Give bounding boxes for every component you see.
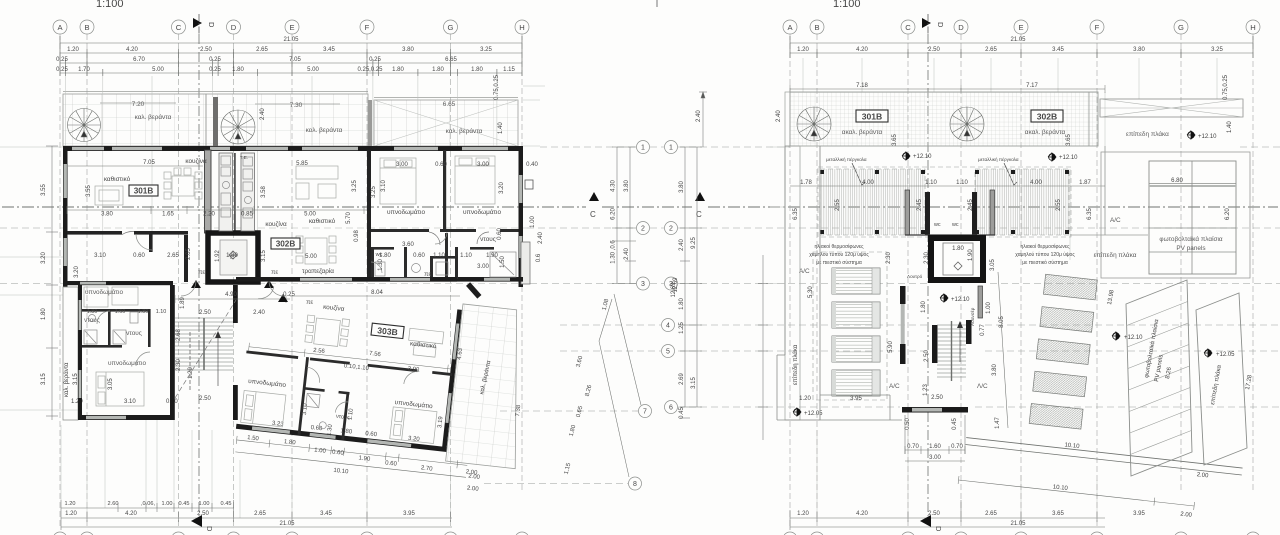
svg-text:3.10: 3.10 — [124, 399, 136, 405]
svg-text:2.50: 2.50 — [924, 350, 930, 362]
svg-text:1: 1 — [669, 145, 673, 152]
svg-text:6.65: 6.65 — [443, 101, 456, 108]
svg-text:T.E.: T.E. — [240, 155, 248, 161]
svg-text:4.90: 4.90 — [225, 292, 237, 298]
svg-text:H: H — [1250, 23, 1255, 32]
svg-text:1.80: 1.80 — [921, 301, 927, 313]
svg-text:0.60: 0.60 — [413, 253, 425, 259]
svg-text:2.55: 2.55 — [1056, 199, 1062, 211]
svg-text:1.80: 1.80 — [226, 253, 238, 259]
svg-text:2.40: 2.40 — [776, 110, 782, 122]
svg-text:4.20: 4.20 — [856, 511, 868, 517]
svg-text:6.80: 6.80 — [1171, 178, 1183, 184]
svg-text:3.55: 3.55 — [86, 185, 92, 197]
svg-text:ντους: ντους — [480, 236, 496, 243]
svg-text:0.85: 0.85 — [241, 212, 253, 218]
svg-text:3.95: 3.95 — [1133, 511, 1145, 517]
svg-text:1.15: 1.15 — [503, 67, 515, 73]
svg-text:1.90: 1.90 — [968, 249, 974, 261]
svg-text:3.80: 3.80 — [992, 364, 998, 376]
svg-text:3.25: 3.25 — [371, 186, 377, 198]
svg-text:0.40: 0.40 — [526, 162, 538, 168]
svg-text:3.80: 3.80 — [402, 47, 414, 53]
svg-text:3.20: 3.20 — [499, 182, 505, 194]
svg-text:7.18: 7.18 — [856, 83, 868, 89]
svg-text:5: 5 — [666, 349, 670, 356]
svg-text:καλ. βεράντα: καλ. βεράντα — [63, 362, 70, 397]
svg-text:1.60: 1.60 — [115, 309, 126, 315]
svg-text:καλ. βεράντα: καλ. βεράντα — [306, 126, 343, 134]
svg-text:0.70: 0.70 — [907, 444, 919, 450]
svg-text:3.15: 3.15 — [691, 377, 697, 389]
svg-text:καλ. βεράντα: καλ. βεράντα — [446, 127, 483, 135]
svg-text:301B: 301B — [862, 112, 883, 122]
svg-text:Λ/C: Λ/C — [977, 383, 988, 390]
svg-text:3.05: 3.05 — [108, 378, 114, 390]
svg-text:2.50: 2.50 — [931, 395, 943, 401]
svg-text:A/C: A/C — [799, 268, 810, 275]
svg-text:+12.10: +12.10 — [1198, 134, 1217, 140]
svg-text:B: B — [814, 23, 819, 32]
svg-text:2.50: 2.50 — [199, 396, 211, 402]
svg-text:με πιεστικό σύστημα: με πιεστικό σύστημα — [1022, 259, 1068, 266]
svg-text:D: D — [205, 526, 214, 532]
svg-text:+12.10: +12.10 — [951, 297, 970, 303]
svg-text:καθιστικό: καθιστικό — [309, 217, 336, 225]
svg-text:1.30 ,0.6: 1.30 ,0.6 — [611, 240, 617, 264]
svg-text:1.20: 1.20 — [65, 501, 76, 507]
svg-text:D: D — [207, 22, 216, 28]
svg-text:G: G — [448, 23, 454, 32]
svg-text:2.65: 2.65 — [256, 47, 268, 53]
svg-text:3.65: 3.65 — [1052, 511, 1064, 517]
svg-text:1.47: 1.47 — [995, 417, 1001, 429]
svg-text:3.80: 3.80 — [679, 181, 685, 193]
svg-text:9.25: 9.25 — [691, 237, 697, 249]
svg-text:1.80: 1.80 — [87, 309, 98, 315]
svg-text:4.20: 4.20 — [856, 47, 868, 53]
svg-text:1.20: 1.20 — [188, 367, 194, 379]
svg-text:1.80: 1.80 — [471, 67, 483, 73]
svg-text:πε: πε — [271, 269, 278, 276]
svg-text:4.30: 4.30 — [611, 180, 617, 192]
svg-text:2.65: 2.65 — [167, 253, 179, 259]
svg-text:C: C — [590, 210, 596, 219]
svg-text:2.65: 2.65 — [985, 511, 997, 517]
svg-text:21.05: 21.05 — [1010, 37, 1026, 43]
svg-text:6.20: 6.20 — [611, 208, 617, 220]
svg-text:8.04: 8.04 — [371, 290, 383, 296]
svg-text:1.80: 1.80 — [432, 67, 444, 73]
svg-text:5.00: 5.00 — [304, 212, 316, 218]
svg-text:3.20: 3.20 — [41, 252, 47, 264]
svg-text:7.05: 7.05 — [143, 160, 155, 166]
svg-text:1.00: 1.00 — [162, 501, 173, 507]
svg-text:1.87: 1.87 — [1079, 180, 1091, 186]
svg-text:5.00: 5.00 — [152, 67, 164, 73]
svg-text:3.55: 3.55 — [41, 184, 47, 196]
svg-text:5.00: 5.00 — [307, 67, 319, 73]
svg-text:2.50: 2.50 — [197, 511, 209, 517]
svg-text:+12.05: +12.05 — [1216, 352, 1235, 358]
svg-text:ακαλ. βεράντα: ακαλ. βεράντα — [1025, 128, 1066, 136]
svg-text:3.15: 3.15 — [41, 373, 47, 385]
svg-text:επίπεδη πλάκα: επίπεδη πλάκα — [1126, 130, 1169, 138]
svg-text:3.00: 3.00 — [477, 264, 489, 270]
svg-text:3.25: 3.25 — [480, 47, 492, 53]
svg-text:+12.10: +12.10 — [1059, 155, 1078, 161]
svg-text:12,69: 12,69 — [671, 282, 677, 298]
svg-text:1.00: 1.00 — [530, 216, 536, 228]
svg-text:4.20: 4.20 — [126, 47, 138, 53]
svg-text:D: D — [958, 23, 964, 32]
svg-text:3.95: 3.95 — [403, 511, 415, 517]
svg-text:ντους: ντους — [126, 330, 142, 337]
svg-text:2.50: 2.50 — [200, 47, 212, 53]
svg-text:0.25,0.25: 0.25,0.25 — [357, 67, 383, 73]
svg-text:3.10: 3.10 — [94, 253, 106, 259]
svg-text:G: G — [1178, 23, 1184, 32]
svg-text:3.45: 3.45 — [1052, 47, 1064, 53]
svg-text:1:100: 1:100 — [833, 0, 861, 10]
svg-text:0.45: 0.45 — [221, 501, 232, 507]
svg-text:0.45: 0.45 — [679, 407, 685, 419]
svg-text:0.60: 0.60 — [497, 228, 503, 240]
svg-text:,0.06,: ,0.06, — [141, 501, 155, 507]
svg-text:7.20: 7.20 — [132, 101, 145, 108]
svg-text:+12.10: +12.10 — [913, 154, 932, 160]
svg-text:1.60: 1.60 — [929, 444, 941, 450]
svg-text:6.35: 6.35 — [793, 208, 799, 220]
svg-text:1.10: 1.10 — [156, 309, 167, 315]
svg-text:0.70: 0.70 — [951, 444, 963, 450]
svg-text:0.77: 0.77 — [980, 324, 986, 336]
svg-text:2.45: 2.45 — [917, 199, 923, 211]
svg-text:D: D — [934, 526, 943, 532]
svg-text:Λουτρό: Λουτρό — [907, 273, 923, 279]
svg-text:4.00: 4.00 — [1030, 180, 1042, 186]
svg-text:1:100: 1:100 — [96, 0, 124, 10]
svg-text:B: B — [84, 23, 89, 32]
svg-text:1.80: 1.80 — [952, 246, 964, 252]
svg-text:2.30: 2.30 — [176, 359, 182, 371]
svg-text:3.80: 3.80 — [101, 212, 113, 218]
svg-text:χαμηλού τύπου 120μ ύψος: χαμηλού τύπου 120μ ύψος — [1015, 251, 1075, 258]
svg-text:1.40: 1.40 — [1227, 121, 1233, 133]
svg-text:2.40: 2.40 — [624, 248, 630, 260]
svg-text:υπνοδωμάτιο: υπνοδωμάτιο — [85, 288, 124, 296]
svg-text:302B: 302B — [1037, 112, 1058, 122]
svg-text:1.90: 1.90 — [486, 253, 498, 259]
svg-text:2.69: 2.69 — [679, 373, 685, 385]
svg-text:1.80: 1.80 — [379, 253, 391, 259]
svg-text:C: C — [176, 23, 182, 32]
svg-text:μεταλλική πέργκολα: μεταλλική πέργκολα — [978, 156, 1019, 162]
svg-text:wc: wc — [951, 222, 959, 228]
svg-text:2.40: 2.40 — [679, 239, 685, 251]
svg-text:1.80: 1.80 — [41, 308, 47, 320]
svg-text:2.50: 2.50 — [199, 310, 211, 316]
svg-text:1.40: 1.40 — [498, 122, 504, 134]
svg-text:3.45: 3.45 — [323, 47, 335, 53]
svg-text:3.95: 3.95 — [850, 396, 862, 402]
svg-text:302B: 302B — [276, 240, 296, 249]
svg-text:21.05: 21.05 — [1010, 521, 1026, 527]
svg-text:1.80: 1.80 — [679, 298, 685, 310]
svg-text:1.50: 1.50 — [500, 256, 506, 268]
svg-text:1.20: 1.20 — [65, 511, 77, 517]
svg-text:A/C: A/C — [889, 383, 900, 390]
svg-text:5.90: 5.90 — [888, 341, 894, 353]
svg-text:0.25: 0.25 — [283, 292, 295, 298]
svg-text:7.17: 7.17 — [1026, 83, 1038, 89]
svg-text:1.92: 1.92 — [215, 250, 221, 262]
svg-text:8: 8 — [633, 481, 637, 488]
svg-text:1.89: 1.89 — [180, 297, 186, 309]
svg-text:1.78: 1.78 — [800, 180, 812, 186]
svg-text:H: H — [519, 23, 524, 32]
svg-text:κουζίνα: κουζίνα — [185, 157, 207, 165]
svg-text:3.00: 3.00 — [396, 162, 408, 168]
svg-text:0.50: 0.50 — [905, 418, 911, 430]
svg-text:F: F — [1095, 23, 1100, 32]
svg-text:4.20: 4.20 — [125, 511, 137, 517]
svg-text:1.80: 1.80 — [138, 309, 149, 315]
svg-text:κουζίνα: κουζίνα — [265, 220, 287, 228]
svg-text:3.60: 3.60 — [402, 242, 414, 248]
svg-text:πε: πε — [424, 271, 431, 278]
svg-text:0.45: 0.45 — [952, 418, 958, 430]
svg-text:επίπεδη πλάκα: επίπεδη πλάκα — [792, 344, 799, 385]
svg-text:2.40: 2.40 — [253, 310, 265, 316]
svg-text:φωτοβολταϊκά πλαίσια: φωτοβολταϊκά πλαίσια — [1159, 235, 1222, 243]
svg-text:0.75,0.25: 0.75,0.25 — [1223, 74, 1229, 100]
svg-text:3: 3 — [641, 281, 645, 288]
svg-text:1.65: 1.65 — [162, 212, 174, 218]
svg-text:0.60: 0.60 — [133, 253, 145, 259]
svg-text:0.25: 0.25 — [209, 67, 221, 73]
svg-text:ακαλ. βεράντα: ακαλ. βεράντα — [842, 128, 883, 136]
svg-text:2.40: 2.40 — [538, 232, 544, 244]
svg-text:3.25: 3.25 — [1211, 47, 1223, 53]
svg-text:μεταλλική πέργκολα: μεταλλική πέργκολα — [826, 156, 867, 162]
svg-text:1.10: 1.10 — [433, 253, 445, 259]
svg-text:2.40: 2.40 — [696, 110, 702, 122]
svg-text:ηλιακοί θερμοσίφωνες: ηλιακοί θερμοσίφωνες — [1021, 244, 1071, 250]
svg-text:3.25: 3.25 — [352, 180, 358, 192]
svg-text:0.98: 0.98 — [354, 230, 360, 242]
svg-text:καλ. βεράντα: καλ. βεράντα — [135, 113, 172, 121]
svg-text:3.20: 3.20 — [74, 266, 80, 278]
svg-text:2.68: 2.68 — [176, 329, 182, 341]
svg-text:PV panels: PV panels — [1176, 245, 1205, 252]
svg-text:3.15: 3.15 — [261, 250, 267, 262]
svg-text:2: 2 — [641, 226, 645, 233]
svg-text:0.6: 0.6 — [536, 253, 542, 262]
svg-text:πε: πε — [198, 269, 205, 276]
svg-text:τραπεζαρία: τραπεζαρία — [302, 267, 334, 275]
svg-text:1.00: 1.00 — [986, 302, 992, 314]
svg-text:1.20: 1.20 — [797, 47, 809, 53]
svg-text:1.25: 1.25 — [679, 322, 685, 334]
svg-text:A/C: A/C — [1110, 217, 1121, 224]
svg-text:7.30: 7.30 — [290, 102, 303, 109]
svg-text:4.00: 4.00 — [862, 180, 874, 186]
svg-text:5.85: 5.85 — [296, 161, 308, 167]
svg-text:E: E — [289, 23, 294, 32]
svg-text:1.80: 1.80 — [392, 67, 404, 73]
svg-text:21.05: 21.05 — [279, 521, 295, 527]
svg-text:E: E — [1018, 23, 1023, 32]
svg-text:4: 4 — [666, 323, 670, 330]
svg-text:5.00: 5.00 — [305, 254, 317, 260]
svg-text:2.55: 2.55 — [835, 199, 841, 211]
svg-text:υπνοδωμάτιο: υπνοδωμάτιο — [387, 208, 426, 216]
svg-text:1.20: 1.20 — [67, 47, 79, 53]
svg-text:1.10: 1.10 — [956, 180, 968, 186]
svg-text:1.10: 1.10 — [460, 253, 472, 259]
svg-text:6.35: 6.35 — [1087, 208, 1093, 220]
svg-text:1.80: 1.80 — [232, 67, 244, 73]
svg-text:1.23: 1.23 — [923, 384, 929, 396]
svg-text:6.65: 6.65 — [445, 57, 457, 63]
svg-text:21.05: 21.05 — [283, 37, 299, 43]
svg-text:6: 6 — [669, 405, 673, 412]
svg-text:3.00: 3.00 — [477, 162, 489, 168]
svg-text:0.45: 0.45 — [179, 501, 190, 507]
svg-text:πε: πε — [306, 299, 313, 306]
svg-text:ηλιακοί θερμοσίφωνες: ηλιακοί θερμοσίφωνες — [815, 244, 865, 250]
svg-text:F: F — [365, 23, 370, 32]
svg-text:7.05: 7.05 — [289, 57, 301, 63]
svg-text:7: 7 — [643, 409, 647, 416]
svg-text:3.58: 3.58 — [261, 186, 267, 198]
svg-text:επίπεδη πλάκα: επίπεδη πλάκα — [1094, 251, 1137, 259]
svg-text:D: D — [231, 23, 237, 32]
svg-text:υπνοδωμάτιο: υπνοδωμάτιο — [108, 359, 147, 367]
svg-text:2.20: 2.20 — [203, 212, 215, 218]
svg-text:1.70: 1.70 — [78, 67, 90, 73]
svg-text:6.20: 6.20 — [1225, 208, 1231, 220]
svg-text:3.45: 3.45 — [320, 511, 332, 517]
svg-text:με πιεστικό σύστημα: με πιεστικό σύστημα — [816, 259, 862, 266]
svg-text:1.20: 1.20 — [797, 511, 809, 517]
svg-text:3.65: 3.65 — [892, 134, 898, 146]
svg-text:3.80: 3.80 — [1133, 47, 1145, 53]
svg-text:301B: 301B — [134, 187, 154, 196]
svg-text:1.00: 1.00 — [199, 501, 210, 507]
svg-text:+12.10: +12.10 — [1124, 335, 1143, 341]
svg-text:0.25: 0.25 — [56, 67, 68, 73]
svg-text:καθιστικό: καθιστικό — [104, 175, 131, 183]
svg-text:3.10: 3.10 — [381, 180, 387, 192]
svg-text:wc: wc — [933, 222, 941, 228]
svg-text:1.10: 1.10 — [925, 180, 937, 186]
svg-text:2: 2 — [669, 226, 673, 233]
svg-text:8.05: 8.05 — [999, 316, 1005, 328]
svg-text:2.50: 2.50 — [928, 47, 940, 53]
svg-text:3.00: 3.00 — [929, 455, 941, 461]
svg-text:D: D — [936, 22, 945, 28]
svg-text:0.25: 0.25 — [56, 57, 68, 63]
svg-text:C: C — [905, 23, 911, 32]
svg-text:3.05: 3.05 — [990, 259, 996, 271]
svg-text:0.25: 0.25 — [209, 57, 221, 63]
svg-text:6.70: 6.70 — [133, 57, 145, 63]
svg-text:3.65: 3.65 — [1066, 134, 1072, 146]
svg-text:0.60: 0.60 — [435, 162, 447, 168]
svg-text:2.05: 2.05 — [186, 248, 192, 260]
svg-text:1: 1 — [641, 145, 645, 152]
svg-text:3.80: 3.80 — [624, 180, 630, 192]
svg-text:0.25: 0.25 — [369, 57, 381, 63]
svg-text:2.65: 2.65 — [985, 47, 997, 53]
svg-text:5.70: 5.70 — [346, 212, 352, 224]
svg-text:2.60: 2.60 — [108, 501, 119, 507]
svg-text:2.65: 2.65 — [254, 511, 266, 517]
svg-text:2.40: 2.40 — [260, 108, 266, 120]
svg-text:1.20: 1.20 — [799, 396, 811, 402]
svg-text:5.30: 5.30 — [808, 286, 814, 298]
svg-text:υπνοδωμάτιο: υπνοδωμάτιο — [463, 208, 502, 216]
